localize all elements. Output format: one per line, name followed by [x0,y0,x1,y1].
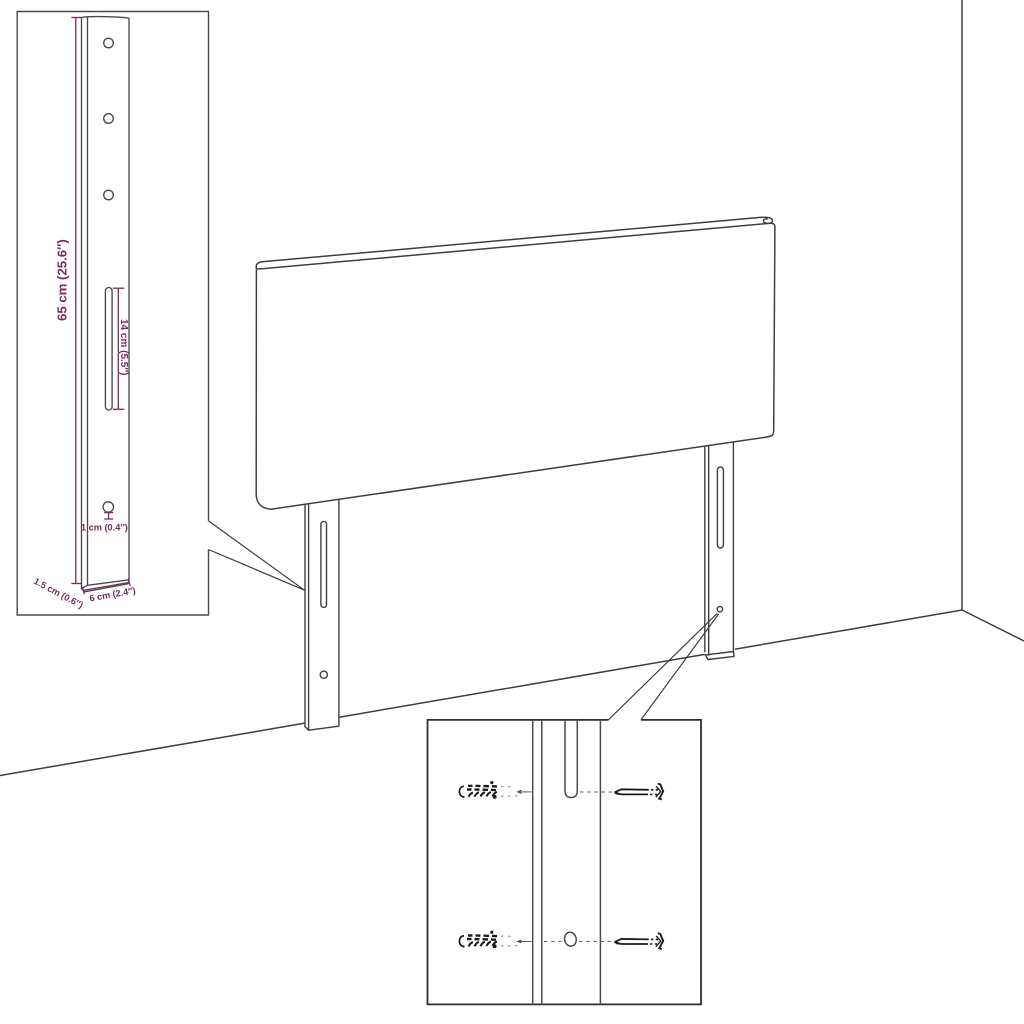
svg-text:1 cm (0.4″): 1 cm (0.4″) [81,523,128,533]
svg-text:65 cm (25.6″): 65 cm (25.6″) [55,239,70,321]
svg-text:1.5 cm (0.6″): 1.5 cm (0.6″) [32,576,85,610]
svg-text:14 cm (5.5″): 14 cm (5.5″) [118,319,129,375]
